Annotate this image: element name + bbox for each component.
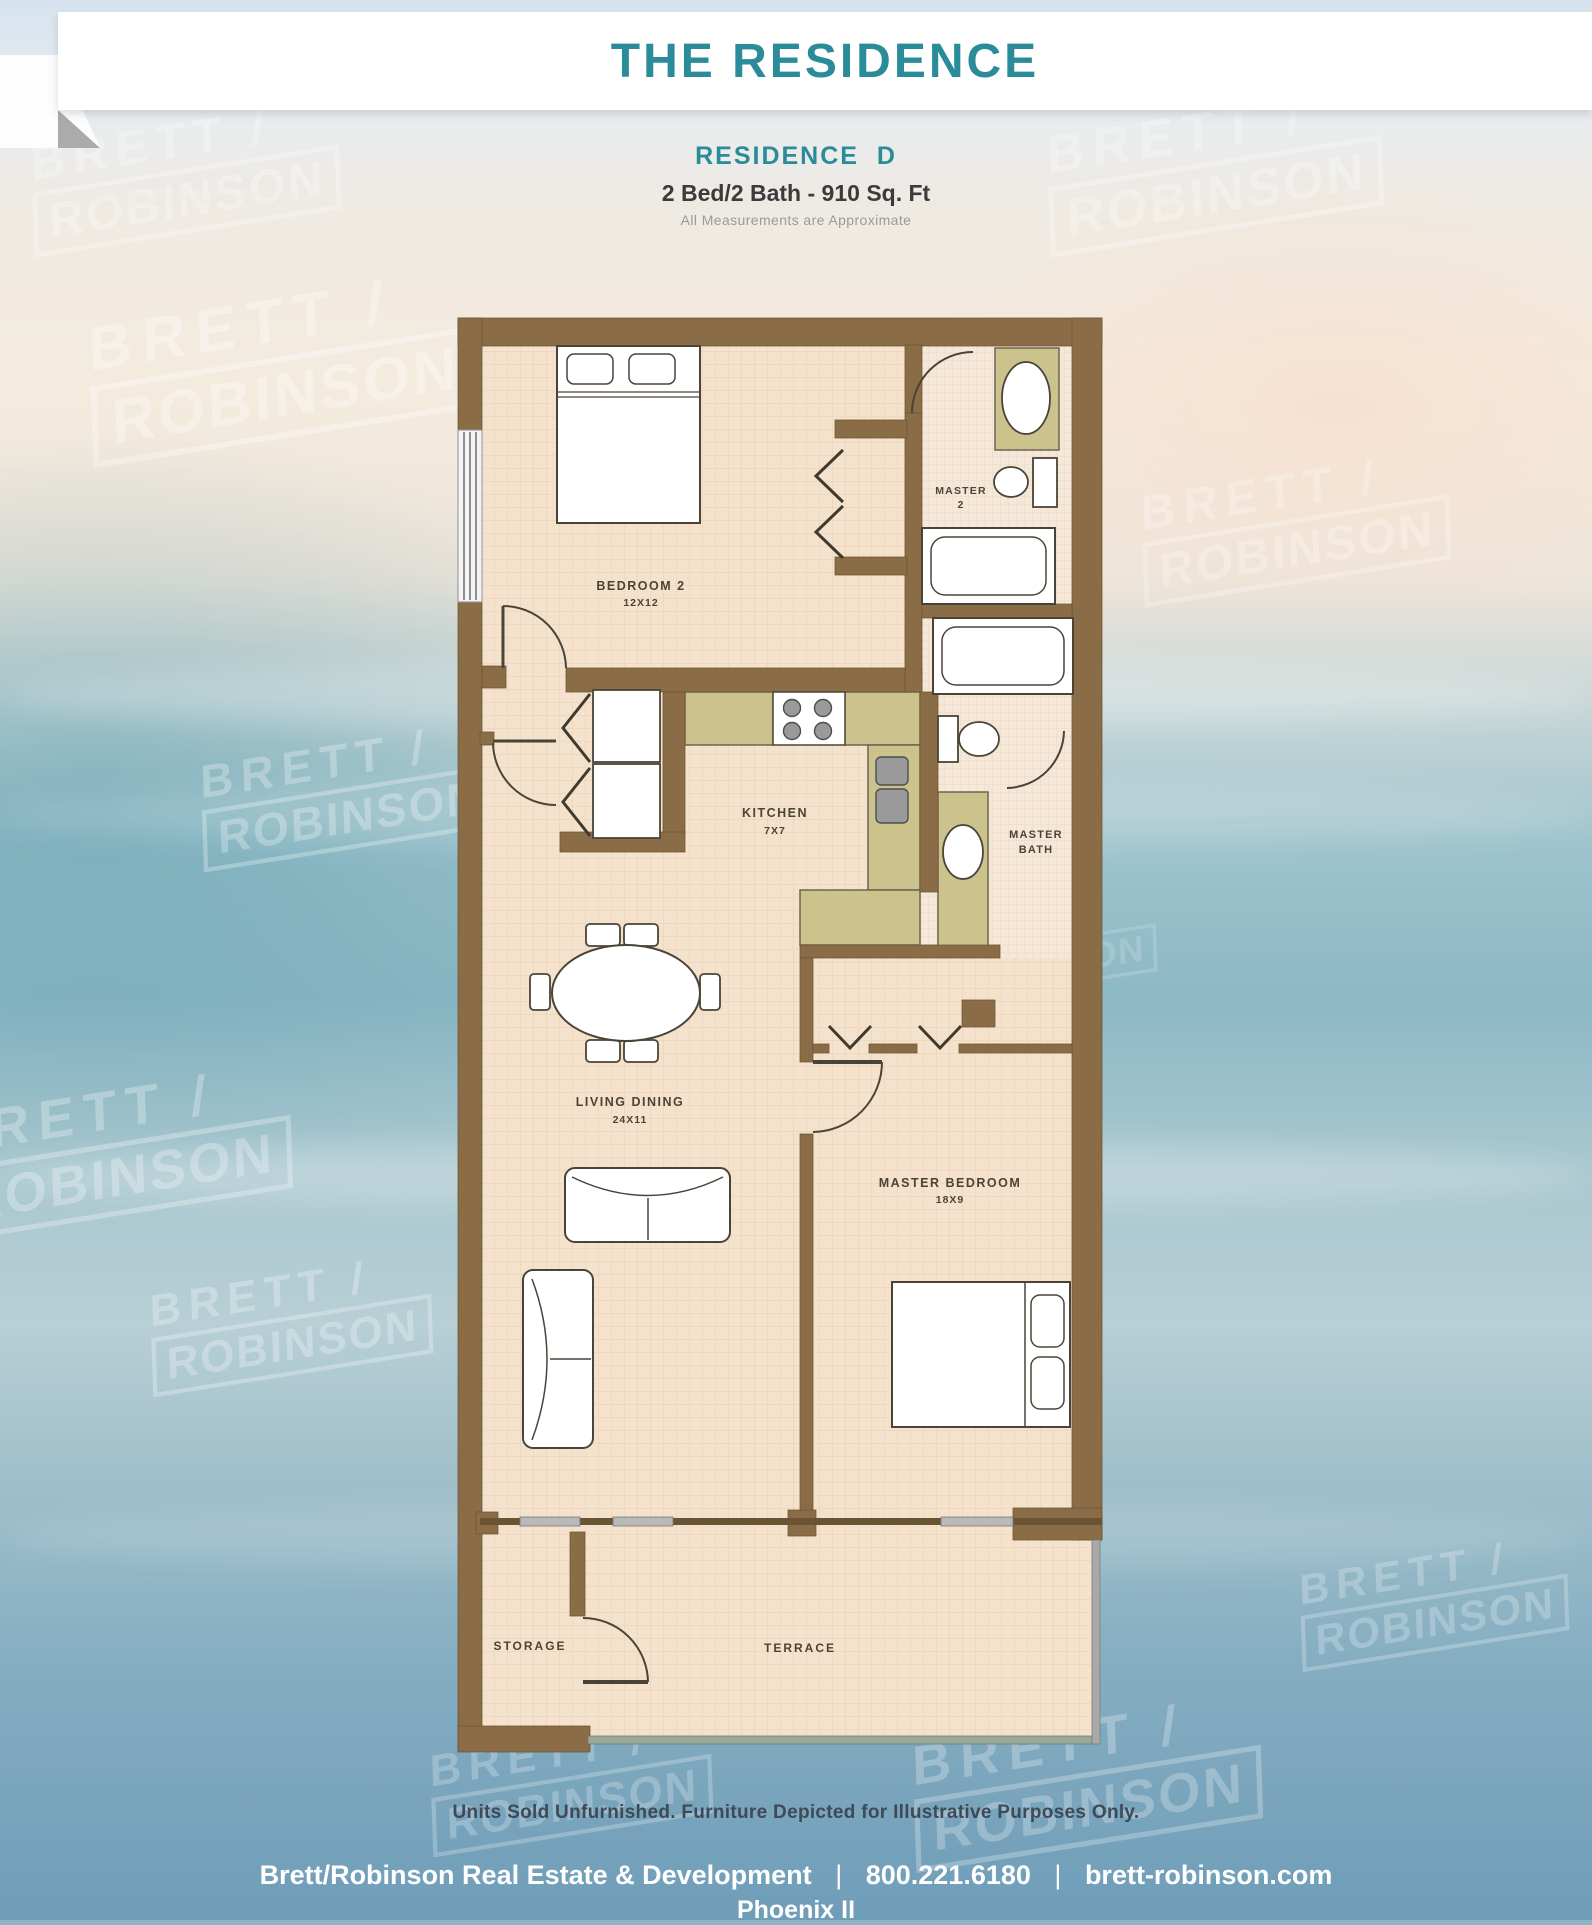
page-title: THE RESIDENCE <box>611 34 1039 89</box>
bathtub-master <box>933 618 1073 694</box>
phone-number: 800.221.6180 <box>866 1860 1031 1890</box>
dining-table <box>552 945 700 1041</box>
label-master-bedroom-dims: 18X9 <box>936 1194 965 1206</box>
company-name: Brett/Robinson Real Estate & Development <box>260 1860 812 1890</box>
title-banner: THE RESIDENCE <box>58 12 1592 110</box>
master-bed <box>892 1282 1070 1427</box>
closet-shelves <box>593 690 660 838</box>
label-master-bath: MASTER <box>1009 829 1063 841</box>
stove <box>773 692 845 745</box>
label-storage: STORAGE <box>493 1639 566 1653</box>
label-master2: MASTER <box>935 485 987 497</box>
sofa <box>565 1168 730 1242</box>
sliding-doors <box>480 1517 1102 1526</box>
bed2-bed <box>557 346 700 523</box>
label-master-bath2: BATH <box>1019 844 1054 856</box>
loveseat <box>523 1270 593 1448</box>
separator: | <box>835 1860 842 1890</box>
bathtub-master2 <box>922 528 1055 604</box>
measurements-note: All Measurements are Approximate <box>0 212 1592 228</box>
label-master2-num: 2 <box>957 499 964 511</box>
shower <box>1002 362 1050 434</box>
floor-plan: BEDROOM 2 12X12 MASTER 2 KITCHEN 7X7 MAS… <box>0 0 1592 1920</box>
footer-contact-line: Brett/Robinson Real Estate & Development… <box>0 1860 1592 1891</box>
separator: | <box>1054 1860 1061 1890</box>
building-name: Phoenix II <box>0 1896 1592 1925</box>
label-terrace: TERRACE <box>764 1641 836 1655</box>
label-kitchen-dims: 7X7 <box>764 825 786 837</box>
label-living-dims: 24X11 <box>613 1114 648 1126</box>
disclaimer-text: Units Sold Unfurnished. Furniture Depict… <box>0 1802 1592 1824</box>
residence-specs: 2 Bed/2 Bath - 910 Sq. Ft <box>0 180 1592 207</box>
label-living-dining: LIVING DINING <box>576 1095 684 1109</box>
residence-name: RESIDENCE D <box>0 142 1592 171</box>
vanity-sink <box>943 825 983 879</box>
window <box>458 430 482 602</box>
kitchen-sink <box>876 757 908 823</box>
label-kitchen: KITCHEN <box>742 806 808 820</box>
label-master-bedroom: MASTER BEDROOM <box>879 1176 1022 1190</box>
website-url: brett-robinson.com <box>1085 1860 1333 1890</box>
label-bedroom2-dims: 12X12 <box>623 597 658 609</box>
label-bedroom2: BEDROOM 2 <box>596 579 685 593</box>
